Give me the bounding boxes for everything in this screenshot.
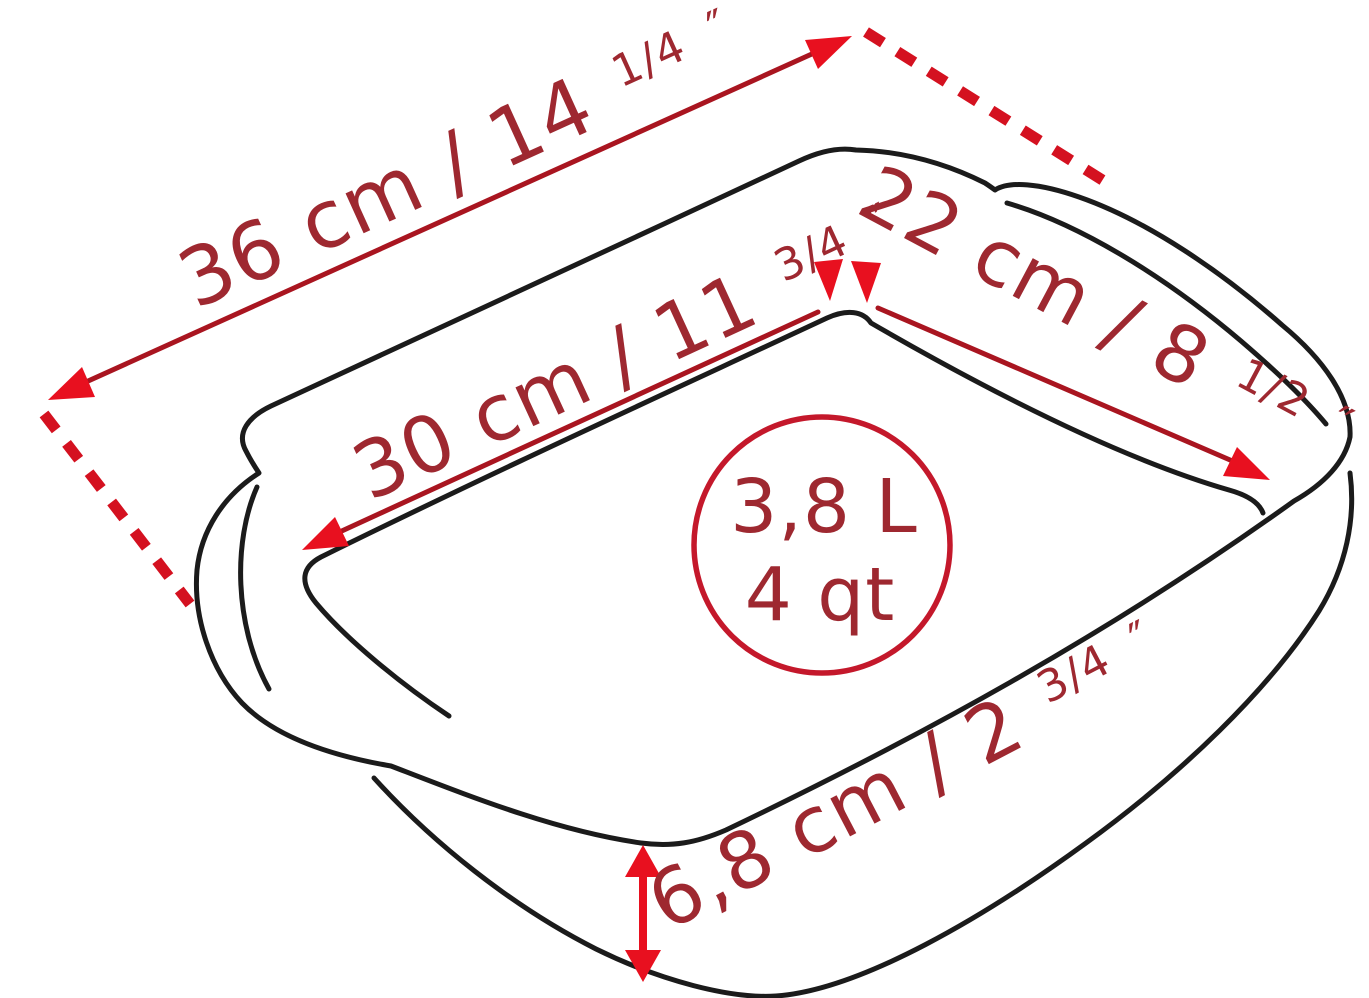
label-main: 6,8 cm / 2 — [634, 680, 1038, 948]
label-fraction: 1/2 — [1228, 348, 1318, 428]
capacity-badge: 3,8 L 4 qt — [694, 417, 950, 673]
label-main: 30 cm / 11 — [340, 256, 771, 519]
arrowhead-interior-width-right — [1223, 447, 1270, 480]
dimension-diagram: 36 cm / 14 1/4 ″ 30 cm / 11 3/4 ″ 22 cm … — [0, 0, 1369, 998]
label-inch-mark: ″ — [1120, 609, 1162, 666]
interior-width-label: 22 cm / 8 1/2 ″ — [845, 126, 1369, 482]
label-fraction: 3/4 — [767, 215, 857, 293]
dimension-overall-length: 36 cm / 14 1/4 ″ — [44, 0, 1112, 604]
capacity-litres: 3,8 L — [730, 464, 917, 550]
arrowhead-overall-right — [805, 36, 852, 69]
label-inch-mark: ″ — [699, 0, 738, 55]
arrowhead-interior-length-left — [302, 517, 349, 550]
dish-dimensions-svg: 36 cm / 14 1/4 ″ 30 cm / 11 3/4 ″ 22 cm … — [0, 0, 1369, 998]
handle-underside-line-left — [241, 487, 269, 689]
arrowhead-overall-left — [48, 367, 95, 400]
label-fraction: 3/4 — [1029, 634, 1119, 714]
dimension-interior-width: 22 cm / 8 1/2 ″ — [845, 126, 1369, 482]
capacity-quarts: 4 qt — [745, 552, 896, 638]
overall-length-label: 36 cm / 14 1/4 ″ — [154, 0, 752, 327]
label-inch-mark: ″ — [1321, 395, 1363, 451]
label-fraction: 1/4 — [604, 21, 694, 99]
extension-dash-left — [44, 414, 190, 604]
arrowhead-interior-width-left — [851, 261, 881, 303]
height-label: 6,8 cm / 2 3/4 ″ — [622, 584, 1177, 948]
label-main: 36 cm / 14 — [165, 59, 608, 327]
